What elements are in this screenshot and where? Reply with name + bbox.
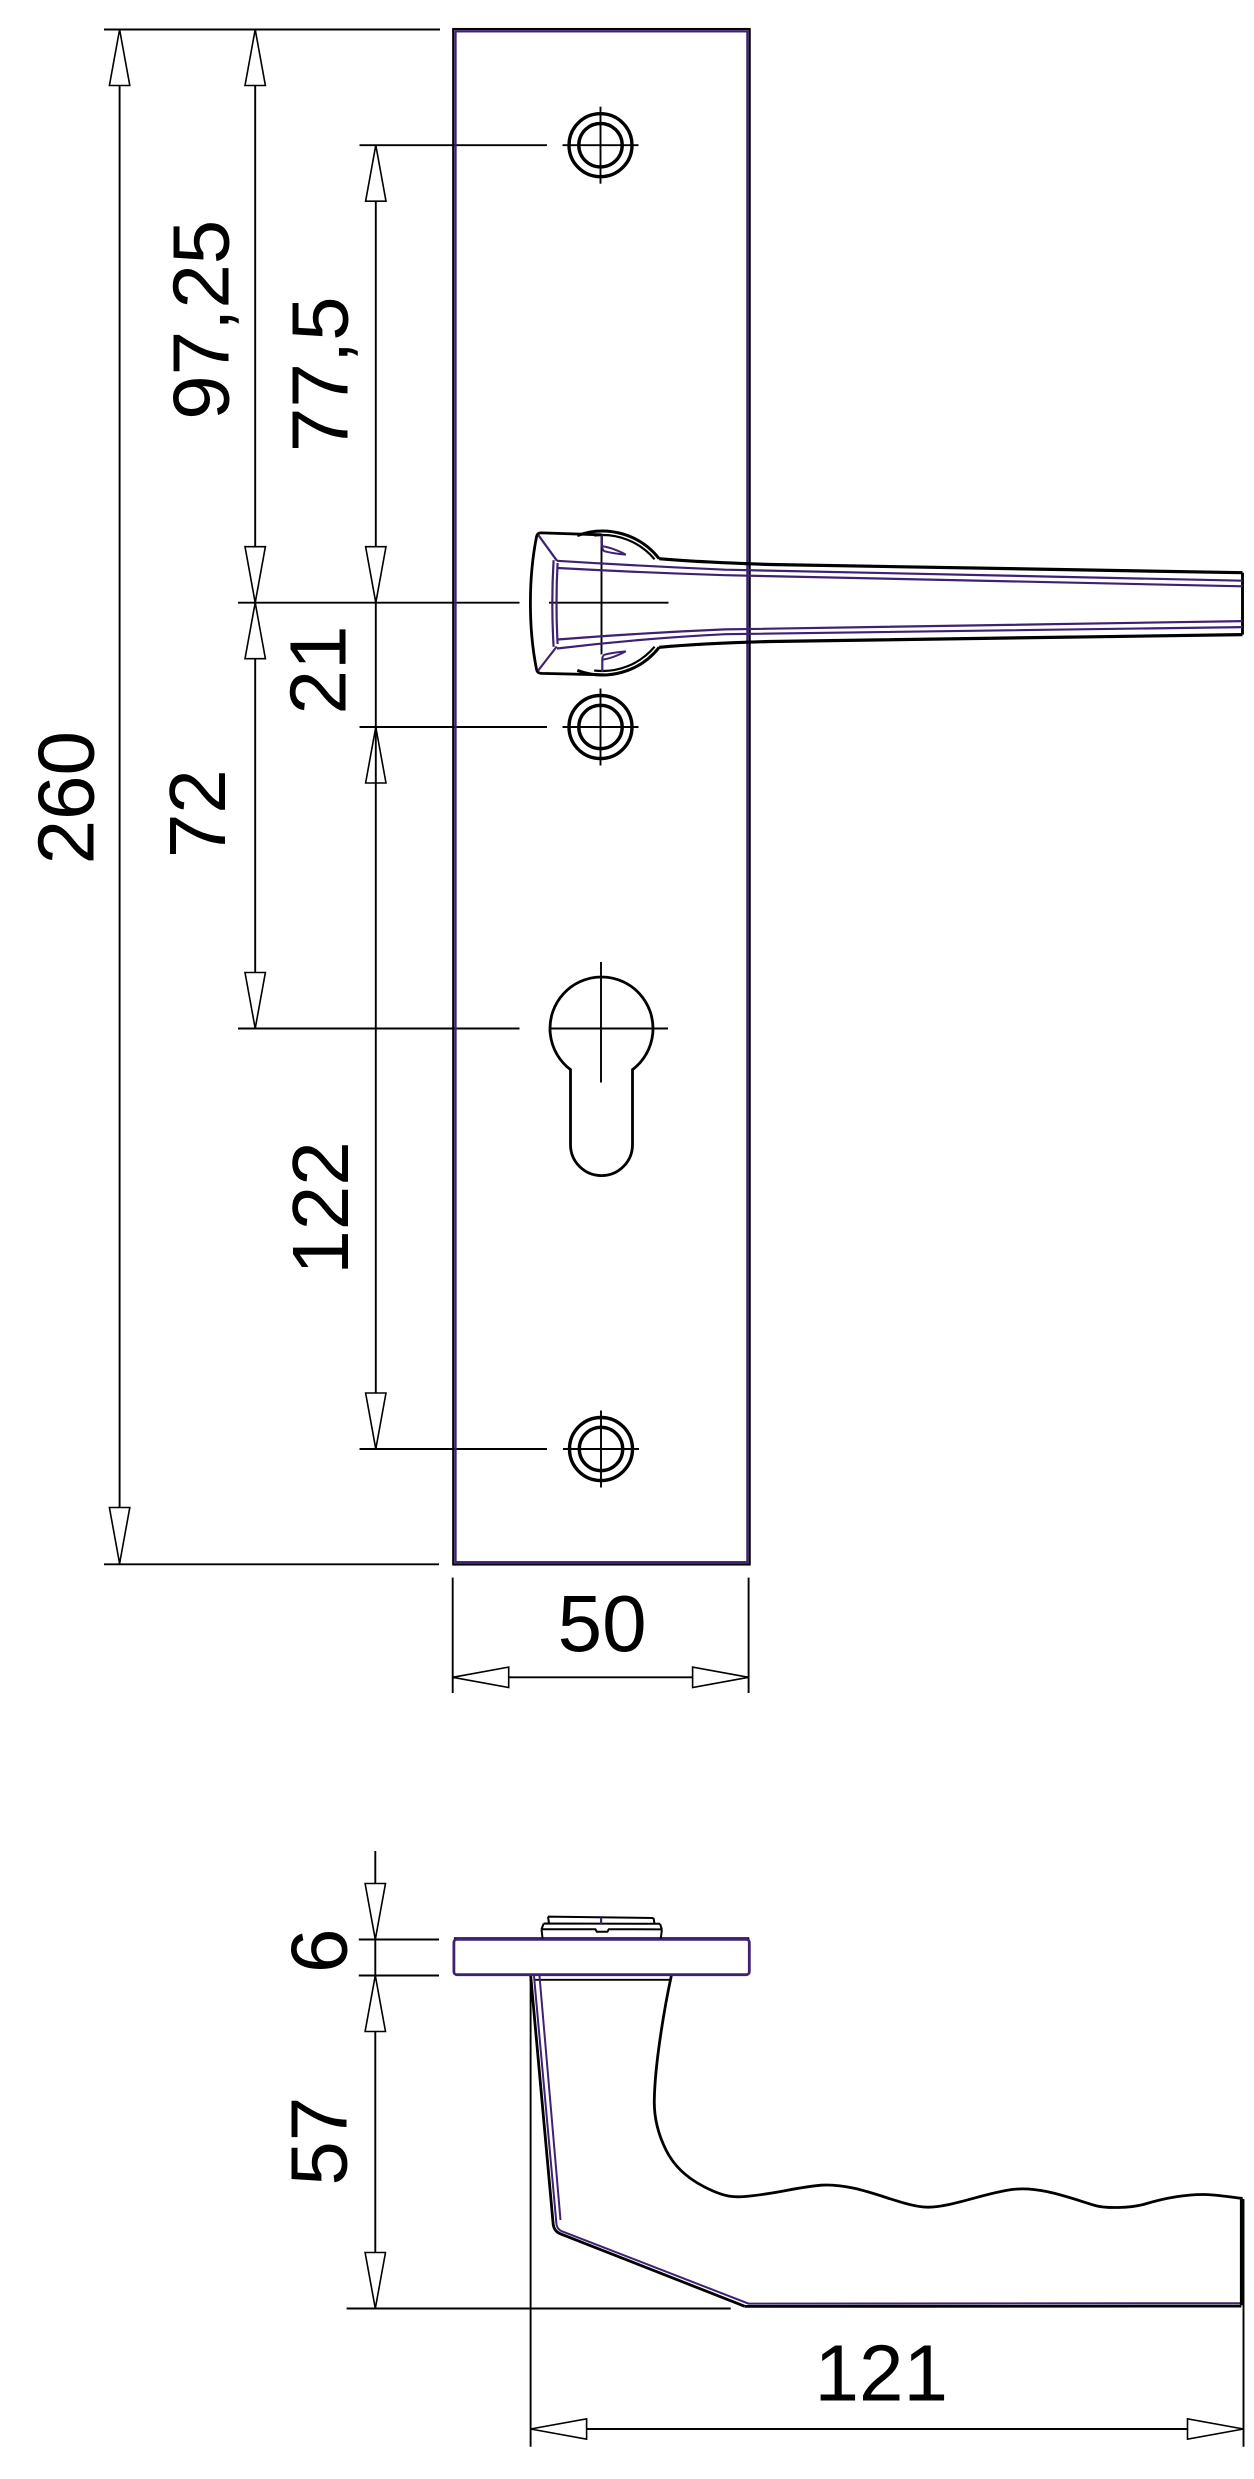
svg-text:57: 57 [274, 2097, 363, 2186]
svg-text:122: 122 [276, 1141, 365, 1274]
svg-text:77,5: 77,5 [275, 296, 364, 452]
svg-text:72: 72 [153, 769, 242, 858]
svg-text:121: 121 [814, 2328, 947, 2417]
svg-text:50: 50 [558, 1579, 647, 1668]
svg-text:6: 6 [274, 1929, 363, 1974]
svg-text:260: 260 [21, 731, 110, 864]
svg-text:21: 21 [274, 626, 363, 715]
svg-text:97,25: 97,25 [156, 220, 245, 420]
